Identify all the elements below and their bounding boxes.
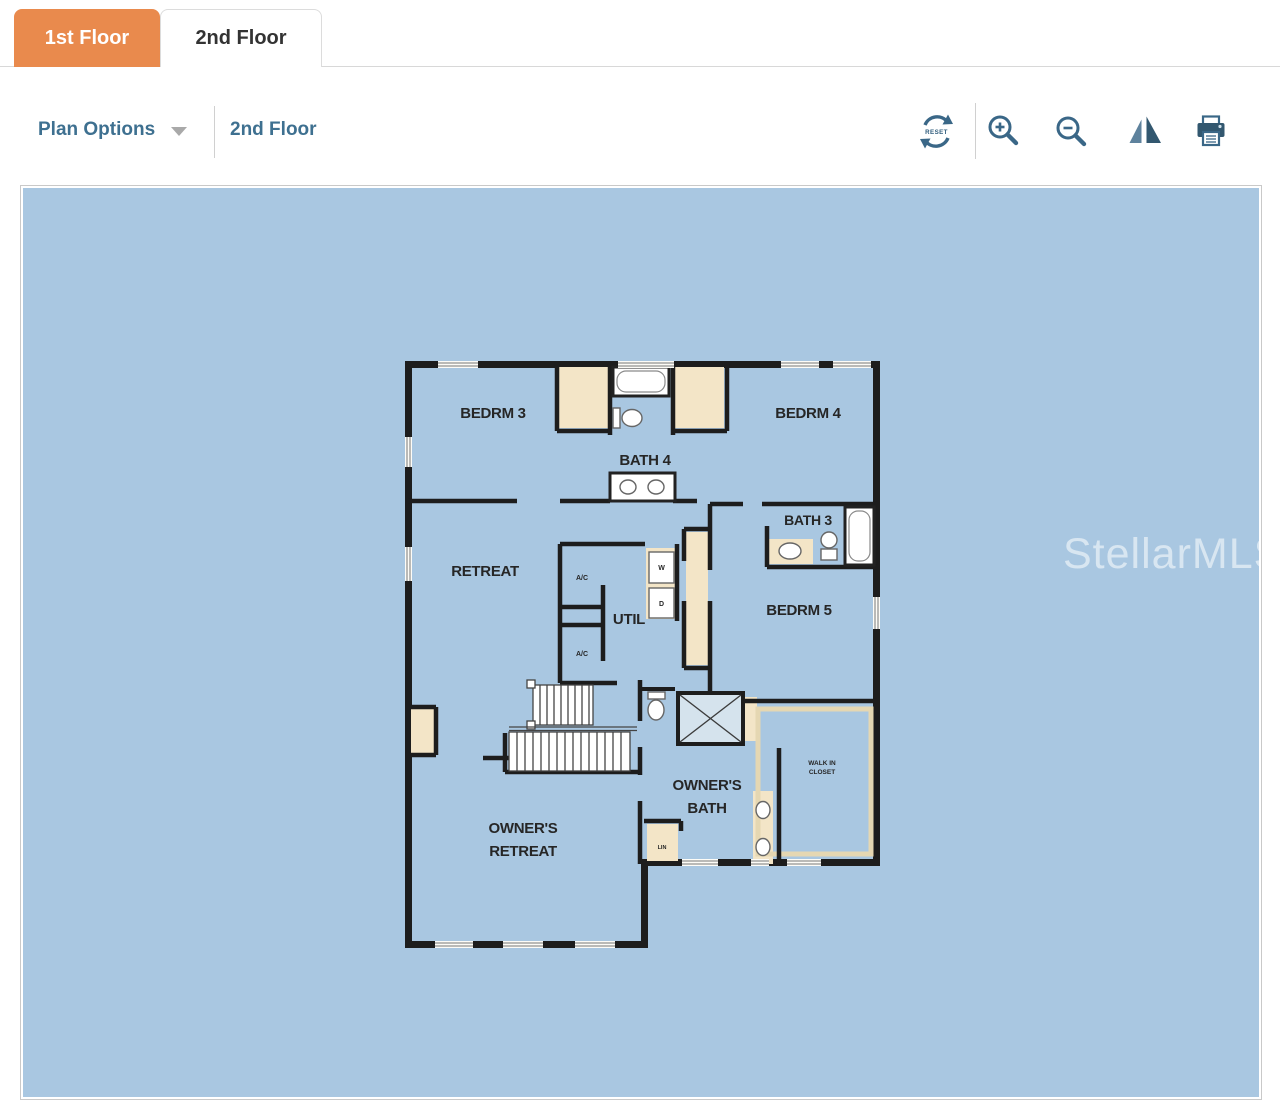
zoom-in-button[interactable] (985, 112, 1023, 155)
tab-2nd-floor[interactable]: 2nd Floor (160, 9, 322, 67)
label-washer: W (658, 565, 665, 572)
room-label-bedrm3: BEDRM 3 (460, 405, 525, 422)
plan-options-label: Plan Options (38, 119, 155, 141)
walkin-closet-carpet (758, 709, 871, 854)
reset-icon: RESET (913, 108, 960, 155)
tab-2nd-floor-label: 2nd Floor (195, 27, 286, 50)
current-floor-label: 2nd Floor (230, 119, 317, 141)
shower (678, 693, 743, 744)
room-label-bedrm5: BEDRM 5 (766, 602, 831, 619)
room-label-owners-bath-2: BATH (687, 800, 726, 817)
floor-plan-drawing: BEDRM 3 BEDRM 4 BATH 4 BATH 3 RETREAT UT… (405, 361, 880, 951)
stairs (509, 680, 637, 771)
room-label-retreat: RETREAT (451, 563, 519, 580)
tab-1st-floor-label: 1st Floor (45, 27, 129, 50)
toolbar-icons-divider (975, 103, 976, 159)
room-label-linen: LIN (658, 845, 667, 851)
plan-options-dropdown[interactable]: Plan Options (38, 119, 187, 141)
plan-viewer-frame: StellarMLS (20, 185, 1262, 1100)
zoom-out-button[interactable] (1053, 113, 1091, 156)
zoom-in-icon (985, 112, 1023, 150)
room-label-walkin-1: WALK IN (808, 760, 836, 767)
room-label-owners-bath-1: OWNER'S (673, 777, 742, 794)
room-label-ac2: A/C (576, 651, 588, 658)
room-label-ac1: A/C (576, 575, 588, 582)
room-label-walkin-2: CLOSET (809, 769, 835, 776)
print-icon (1192, 112, 1230, 150)
zoom-out-icon (1053, 113, 1091, 151)
flip-plan-button[interactable] (1124, 112, 1162, 155)
room-label-bath3: BATH 3 (784, 512, 832, 528)
room-label-bath4: BATH 4 (619, 452, 671, 469)
print-button[interactable] (1192, 112, 1230, 155)
bath4-fixtures (610, 367, 675, 501)
room-label-owners-retreat-2: RETREAT (489, 843, 557, 860)
room-label-bedrm4: BEDRM 4 (775, 405, 841, 422)
watermark: StellarMLS (1063, 530, 1259, 579)
tab-1st-floor[interactable]: 1st Floor (14, 9, 160, 67)
reset-icon-label: RESET (925, 129, 948, 136)
toolbar-divider (214, 106, 215, 158)
chevron-down-icon (171, 127, 187, 136)
reset-button[interactable]: RESET (913, 108, 960, 160)
room-label-owners-retreat-1: OWNER'S (489, 820, 558, 837)
room-label-util: UTIL (613, 611, 645, 628)
flip-horizontal-icon (1124, 112, 1162, 150)
plan-canvas[interactable]: StellarMLS (23, 188, 1259, 1097)
label-dryer: D (659, 601, 664, 608)
